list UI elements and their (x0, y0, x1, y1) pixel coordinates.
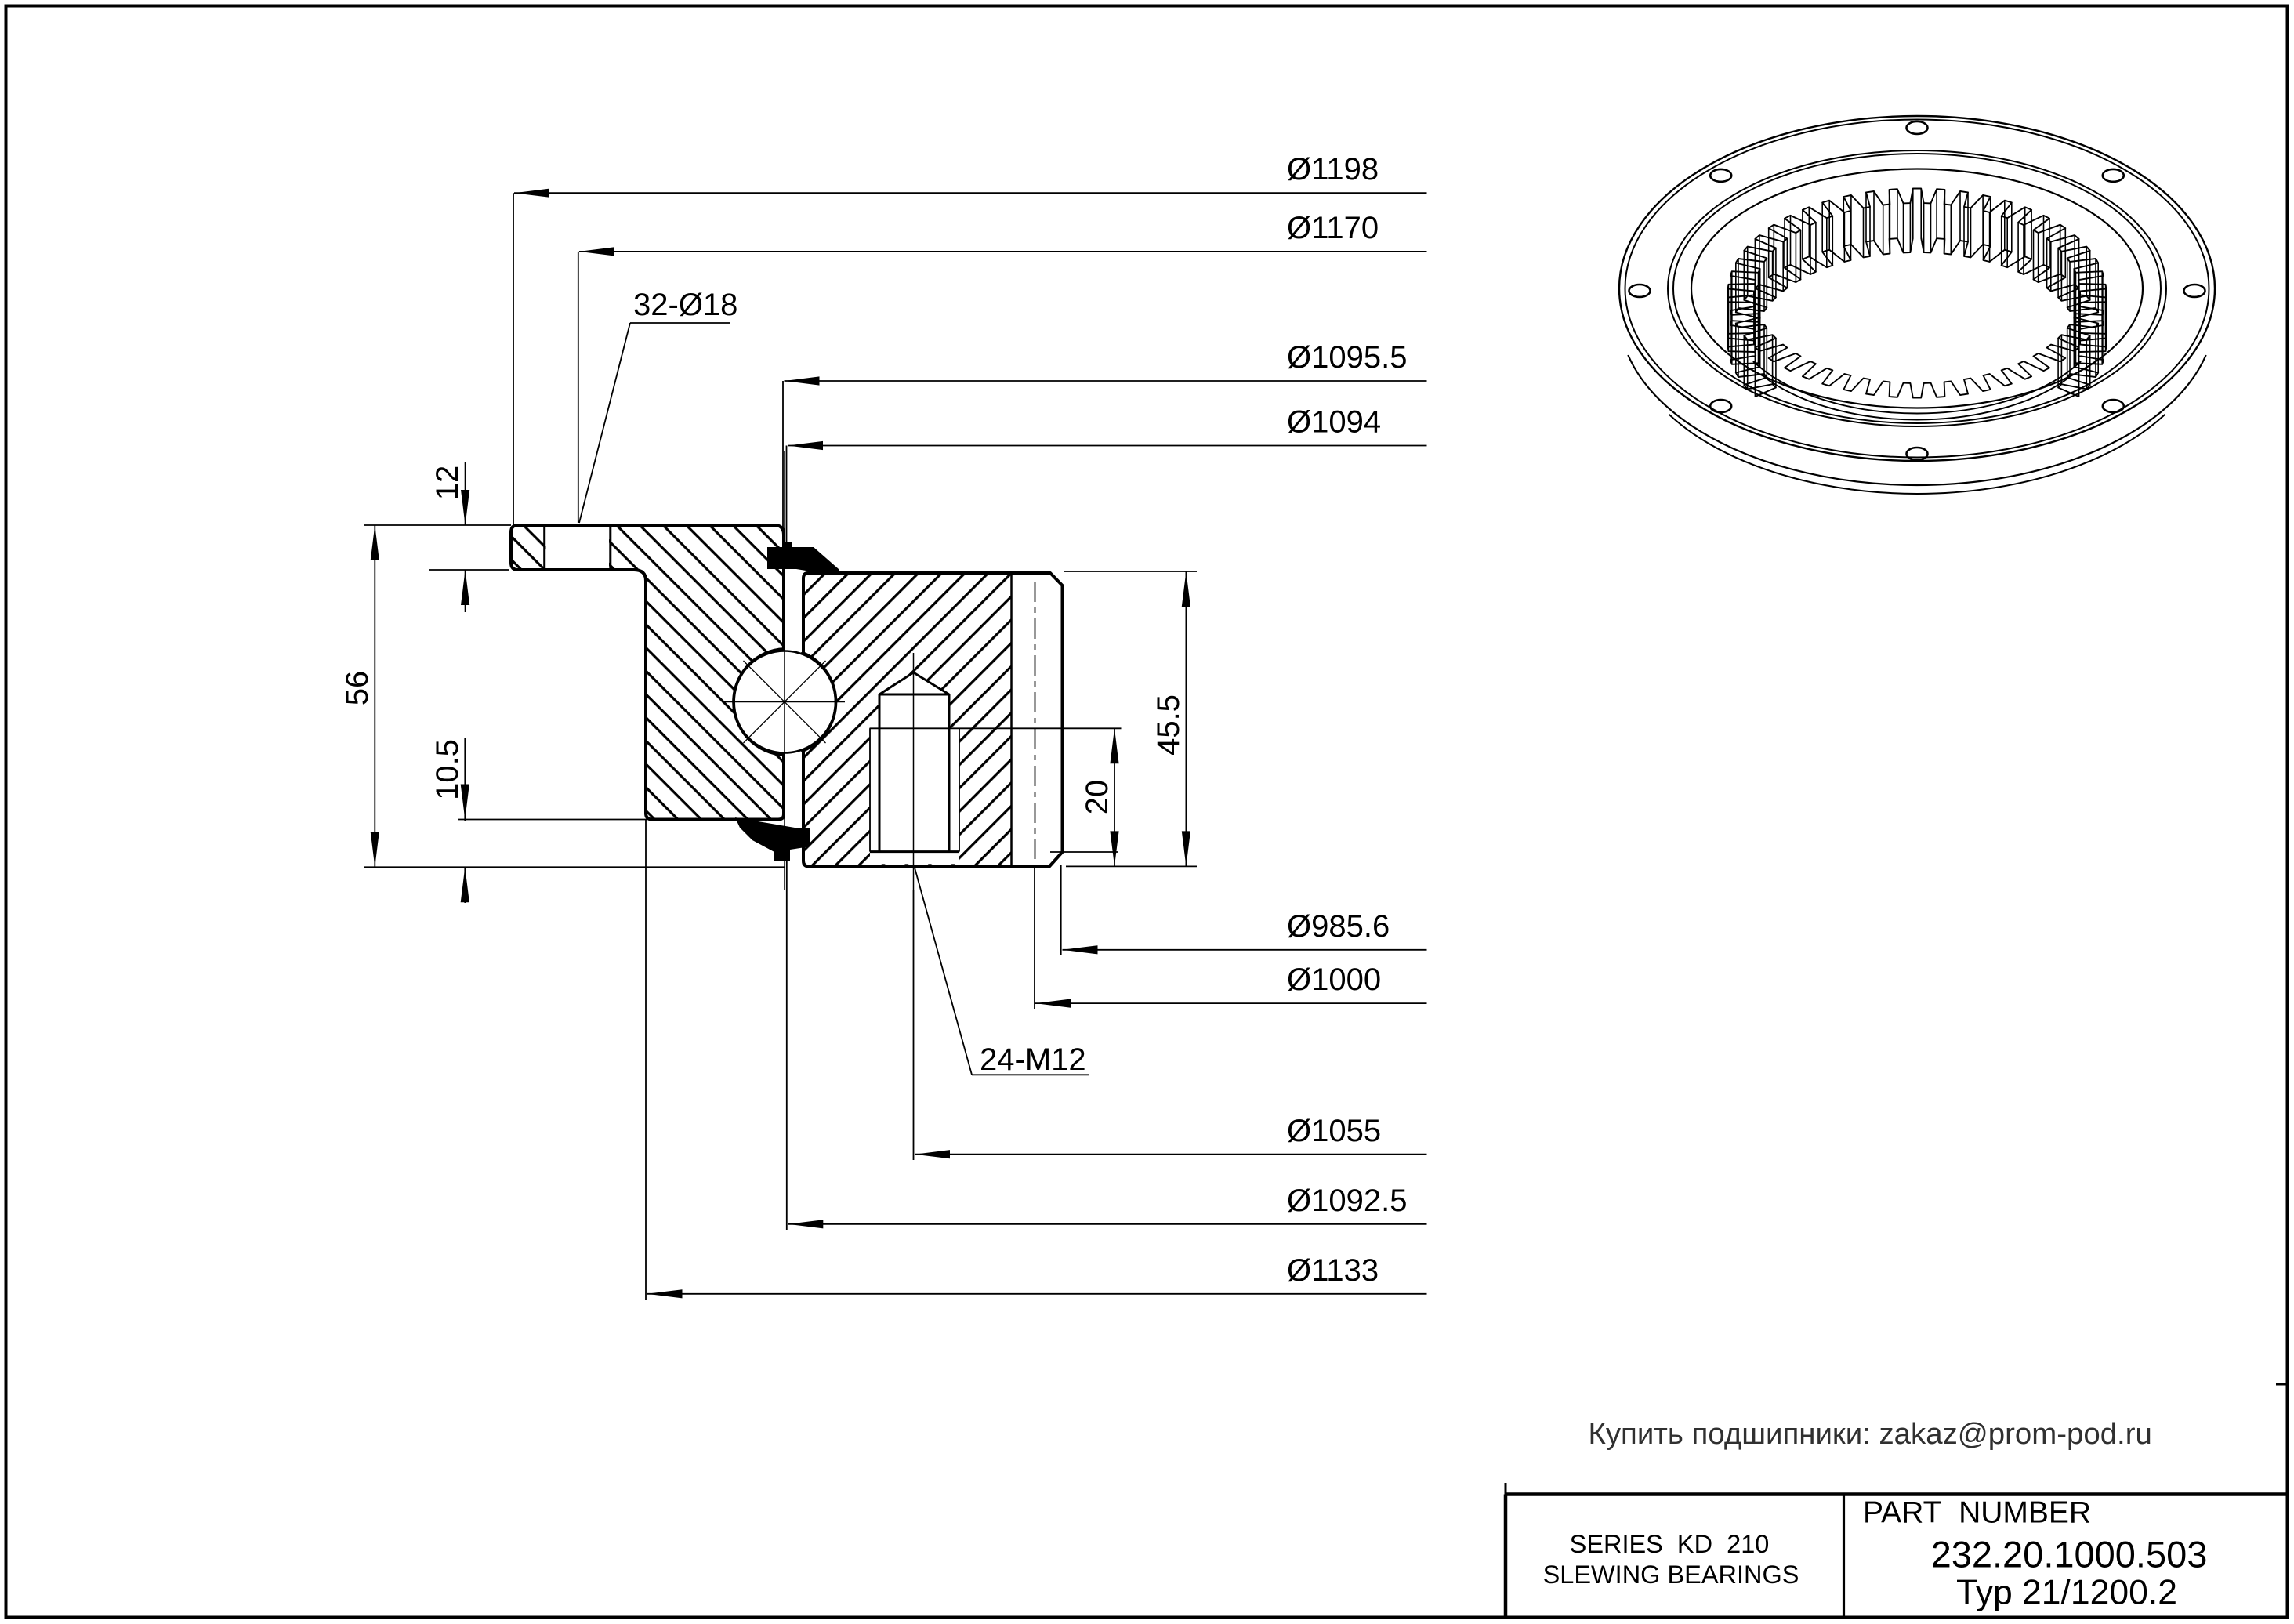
svg-text:Ø1170: Ø1170 (1287, 211, 1379, 245)
svg-text:20: 20 (1080, 780, 1114, 815)
svg-text:45.5: 45.5 (1151, 694, 1186, 756)
svg-text:Ø1055: Ø1055 (1287, 1114, 1381, 1148)
svg-text:10.5: 10.5 (430, 739, 465, 800)
svg-text:32-Ø18: 32-Ø18 (633, 288, 737, 322)
svg-text:SLEWING BEARINGS: SLEWING BEARINGS (1543, 1561, 1799, 1589)
svg-text:Ø1095.5: Ø1095.5 (1287, 340, 1407, 375)
svg-text:Typ 21/1200.2: Typ 21/1200.2 (1956, 1574, 2177, 1612)
svg-text:56: 56 (340, 671, 375, 706)
svg-text:Ø1000: Ø1000 (1287, 962, 1381, 997)
svg-text:PART NUMBER: PART NUMBER (1863, 1496, 2091, 1530)
svg-text:Ø1198: Ø1198 (1287, 152, 1379, 187)
svg-text:232.20.1000.503: 232.20.1000.503 (1931, 1534, 2208, 1575)
svg-text:Ø1092.5: Ø1092.5 (1287, 1184, 1407, 1218)
svg-text:Купить подшипники: zakaz@prom-: Купить подшипники: zakaz@prom-pod.ru (1589, 1417, 2152, 1451)
svg-text:Ø985.6: Ø985.6 (1287, 909, 1390, 944)
svg-text:Ø1094: Ø1094 (1287, 405, 1381, 440)
svg-text:24-M12: 24-M12 (980, 1042, 1086, 1077)
svg-text:SERIES KD 210: SERIES KD 210 (1570, 1530, 1770, 1558)
svg-text:Ø1133: Ø1133 (1287, 1253, 1379, 1288)
svg-text:12: 12 (430, 466, 465, 501)
